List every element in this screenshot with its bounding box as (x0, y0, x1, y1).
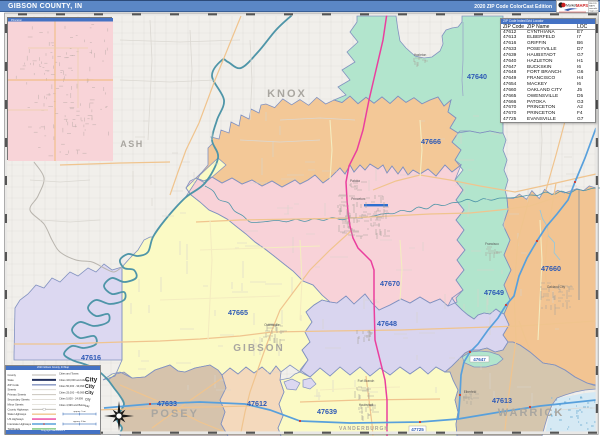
svg-text:maps.com: maps.com (589, 11, 599, 13)
svg-text:47640: 47640 (467, 72, 487, 81)
svg-text:Princeton: Princeton (11, 18, 23, 22)
svg-text:approx. 5 mi: approx. 5 mi (73, 409, 86, 412)
svg-text:City: City (85, 383, 95, 389)
svg-text:47616: 47616 (81, 353, 101, 362)
svg-text:Secondary Streets: Secondary Streets (8, 397, 31, 401)
svg-text:47665: 47665 (228, 308, 248, 317)
svg-text:47660: 47660 (541, 264, 561, 273)
svg-text:VANDERBURGH: VANDERBURGH (339, 426, 389, 432)
svg-text:Haubstadt: Haubstadt (359, 403, 374, 407)
svg-text:47725: 47725 (411, 427, 424, 432)
svg-text:Patoka: Patoka (350, 179, 360, 183)
svg-text:WARRICK: WARRICK (498, 407, 565, 419)
svg-text:47613: 47613 (492, 396, 512, 405)
svg-text:Cities 5,000 - 24,999: Cities 5,000 - 24,999 (59, 396, 83, 400)
svg-text:GIBSON: GIBSON (233, 343, 284, 354)
svg-text:County Highways: County Highways (8, 407, 30, 411)
svg-text:State: State (8, 377, 15, 381)
svg-text:Elberfeld: Elberfeld (464, 390, 477, 394)
svg-text:Princeton: Princeton (351, 197, 365, 201)
svg-text:Oakland City: Oakland City (547, 285, 566, 289)
svg-text:47639: 47639 (317, 407, 337, 416)
svg-text:47666: 47666 (421, 137, 441, 146)
svg-text:Owensville: Owensville (264, 323, 280, 327)
svg-text:City: City (85, 403, 90, 407)
svg-text:Streets: Streets (8, 387, 17, 391)
svg-text:POSEY: POSEY (151, 408, 199, 420)
svg-text:Francisco: Francisco (485, 242, 499, 246)
svg-text:ASH: ASH (120, 139, 144, 149)
svg-text:Cities 25,000 - 49,999: Cities 25,000 - 49,999 (59, 390, 85, 394)
svg-text:City: City (85, 390, 94, 395)
svg-text:47670: 47670 (380, 279, 400, 288)
svg-text:ZIP Code: ZIP Code (8, 382, 20, 386)
svg-text:City: City (85, 397, 91, 401)
svg-text:MAPS: MAPS (576, 3, 588, 8)
svg-text:Interstate Highways: Interstate Highways (8, 422, 32, 426)
svg-text:Primary Streets: Primary Streets (8, 392, 27, 396)
svg-text:Cities and Towns: Cities and Towns (59, 371, 79, 375)
svg-text:Market: Market (566, 4, 576, 8)
svg-text:State Highways: State Highways (8, 412, 27, 416)
svg-text:Minor Streets: Minor Streets (8, 402, 25, 406)
svg-text:US Highways: US Highways (8, 417, 25, 421)
svg-text:47647: 47647 (473, 357, 486, 362)
svg-text:City: City (85, 376, 98, 383)
svg-text:47612: 47612 (247, 399, 267, 408)
svg-text:47633: 47633 (157, 399, 177, 408)
svg-text:Cities 50,000 - 99,999: Cities 50,000 - 99,999 (59, 384, 85, 388)
svg-text:Fort Branch: Fort Branch (358, 379, 375, 383)
svg-text:47648: 47648 (377, 319, 397, 328)
svg-text:Hazleton: Hazleton (414, 53, 427, 57)
svg-text:approx. 8 km: approx. 8 km (73, 419, 86, 422)
svg-text:47649: 47649 (484, 288, 504, 297)
svg-text:Cities 4,999 and Below: Cities 4,999 and Below (59, 403, 86, 407)
svg-text:KNOX: KNOX (267, 88, 307, 100)
svg-text:County: County (8, 373, 17, 377)
